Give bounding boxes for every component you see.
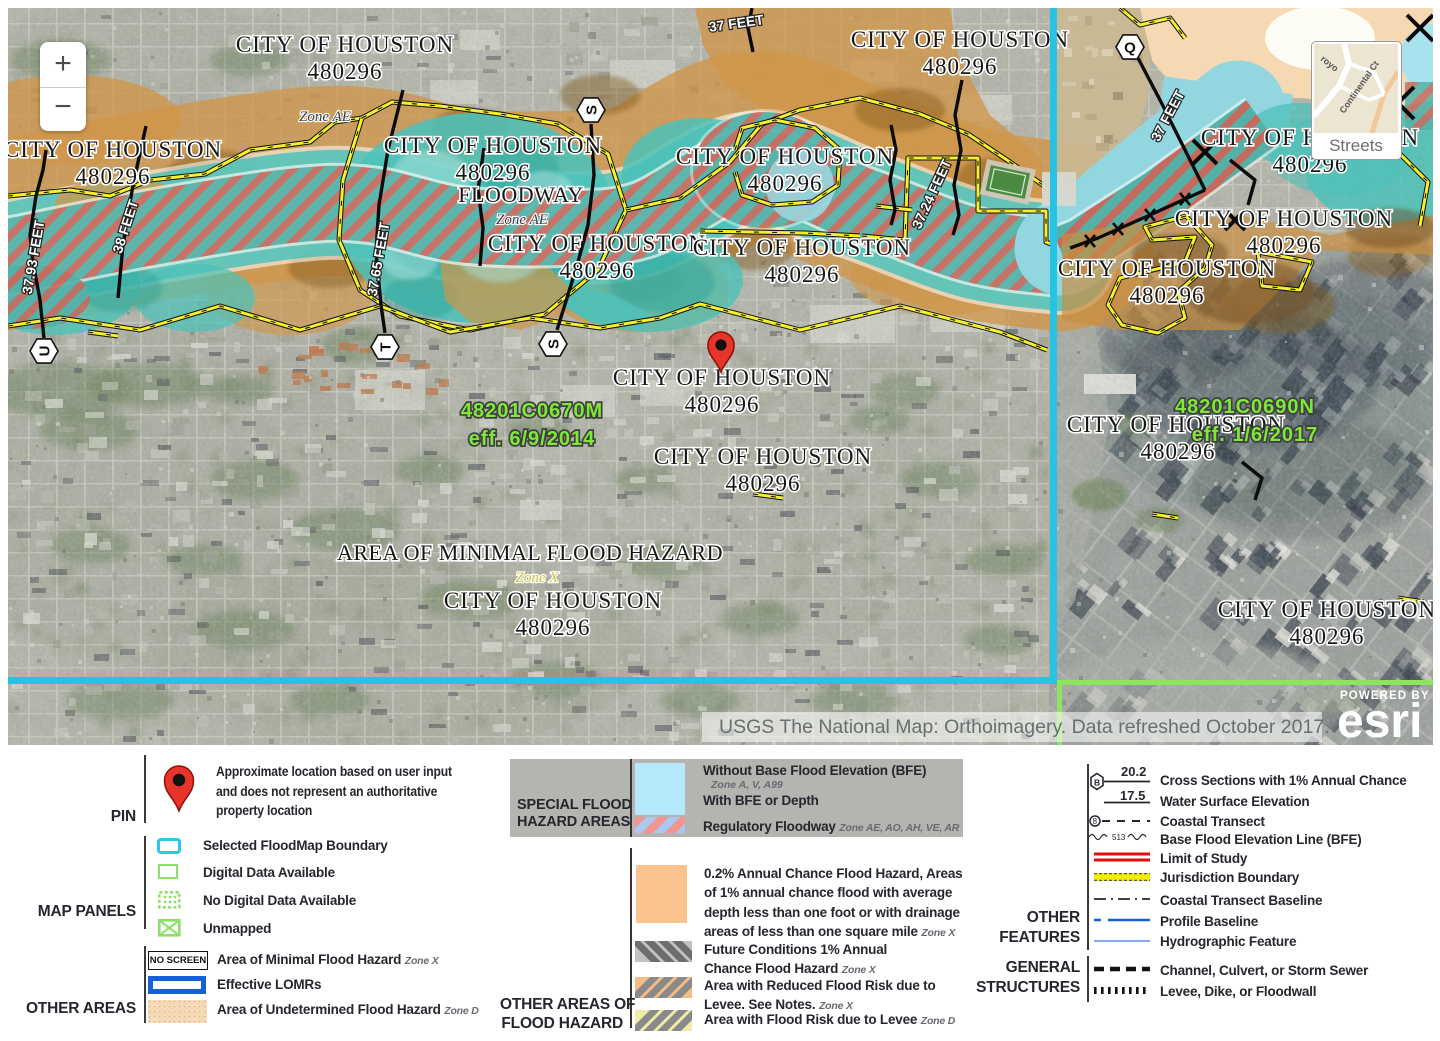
- svg-text:T: T: [378, 342, 395, 351]
- svg-text:CITY OF HOUSTON: CITY OF HOUSTON: [1175, 206, 1393, 231]
- svg-text:480296: 480296: [923, 54, 998, 79]
- svg-text:U: U: [37, 346, 54, 357]
- svg-text:480296: 480296: [560, 258, 635, 283]
- svg-text:48201C0670M: 48201C0670M: [461, 400, 603, 422]
- svg-text:Q: Q: [1124, 40, 1136, 57]
- svg-text:CITY OF HOUSTON: CITY OF HOUSTON: [676, 144, 894, 169]
- svg-text:8: 8: [1093, 817, 1098, 826]
- svg-text:CITY OF HOUSTON: CITY OF HOUSTON: [1058, 256, 1276, 281]
- svg-text:FLOODWAY: FLOODWAY: [458, 182, 583, 207]
- svg-text:480296: 480296: [748, 171, 823, 196]
- svg-text:480296: 480296: [308, 59, 383, 84]
- svg-text:Zone AE: Zone AE: [299, 109, 351, 125]
- svg-text:48201C0690N: 48201C0690N: [1175, 396, 1315, 418]
- svg-text:royo: royo: [1319, 54, 1341, 74]
- svg-text:480296: 480296: [516, 615, 591, 640]
- svg-text:17.5: 17.5: [1120, 789, 1145, 803]
- svg-text:eff. 6/9/2014: eff. 6/9/2014: [469, 428, 595, 450]
- svg-text:480296: 480296: [76, 164, 151, 189]
- svg-text:513: 513: [1112, 833, 1126, 842]
- svg-text:S: S: [546, 339, 563, 349]
- svg-text:Zone AE: Zone AE: [496, 212, 548, 228]
- svg-text:CITY OF HOUSTON: CITY OF HOUSTON: [488, 231, 706, 256]
- svg-text:CITY OF HOUSTON: CITY OF HOUSTON: [4, 137, 222, 162]
- svg-text:CITY OF HOUSTON: CITY OF HOUSTON: [693, 235, 911, 260]
- svg-text:USGS The National Map: Orthoim: USGS The National Map: Orthoimagery. Dat…: [719, 716, 1330, 738]
- svg-text:CITY OF HOUSTON: CITY OF HOUSTON: [236, 32, 454, 57]
- svg-text:480296: 480296: [1290, 624, 1365, 649]
- svg-text:20.2: 20.2: [1121, 765, 1146, 779]
- svg-text:480296: 480296: [726, 471, 801, 496]
- svg-text:480296: 480296: [685, 392, 760, 417]
- svg-text:CITY OF HOUSTON: CITY OF HOUSTON: [851, 27, 1069, 52]
- svg-text:CITY OF HOUSTON: CITY OF HOUSTON: [654, 444, 872, 469]
- svg-text:esri: esri: [1337, 695, 1422, 748]
- svg-text:S: S: [584, 105, 601, 115]
- svg-text:480296: 480296: [765, 262, 840, 287]
- svg-text:Zone X: Zone X: [516, 570, 560, 586]
- svg-text:eff. 1/6/2017: eff. 1/6/2017: [1192, 424, 1318, 446]
- svg-text:CITY OF HOUSTON: CITY OF HOUSTON: [1218, 597, 1436, 622]
- svg-text:480296: 480296: [1130, 283, 1205, 308]
- svg-text:480296: 480296: [1247, 233, 1322, 258]
- svg-text:B: B: [1094, 778, 1100, 788]
- svg-text:AREA OF MINIMAL FLOOD HAZARD: AREA OF MINIMAL FLOOD HAZARD: [337, 540, 723, 565]
- svg-text:CITY OF HOUSTON: CITY OF HOUSTON: [384, 133, 602, 158]
- svg-text:CITY OF HOUSTON: CITY OF HOUSTON: [444, 588, 662, 613]
